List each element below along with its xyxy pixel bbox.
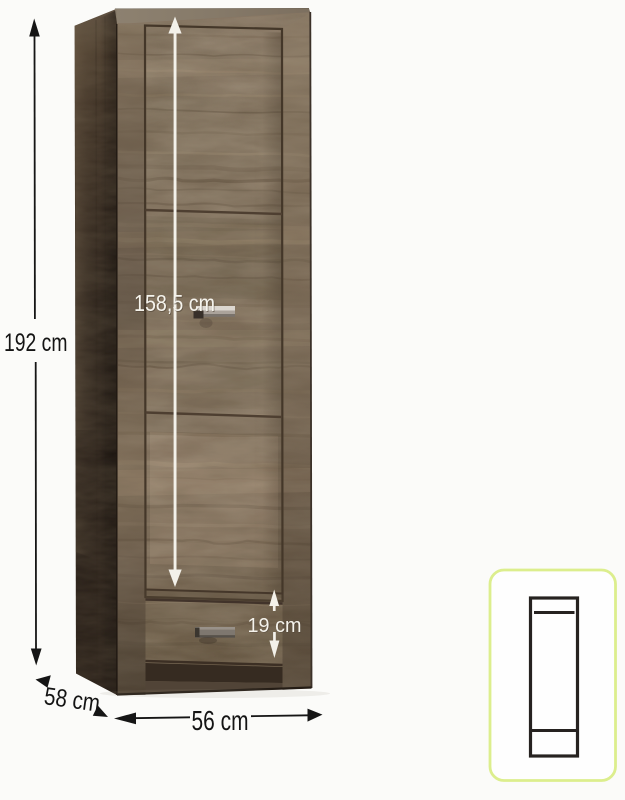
svg-text:56 cm: 56 cm (192, 705, 249, 736)
svg-text:192 cm: 192 cm (4, 329, 68, 357)
svg-text:158,5 cm: 158,5 cm (134, 290, 215, 316)
svg-text:19 cm: 19 cm (248, 614, 302, 637)
